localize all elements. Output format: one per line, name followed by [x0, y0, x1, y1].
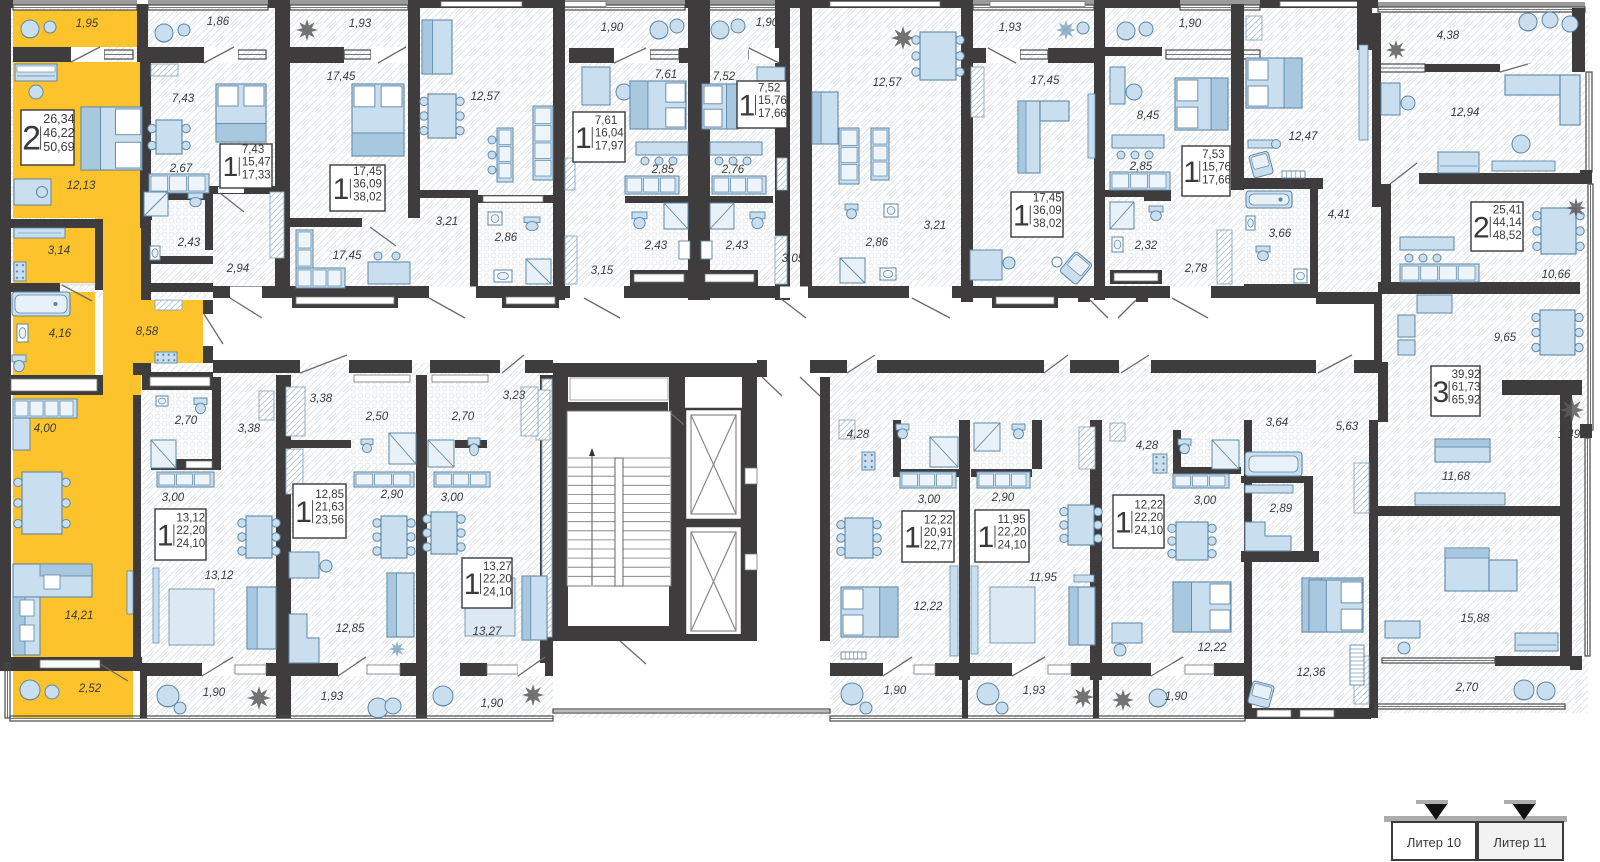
- svg-text:38,02: 38,02: [353, 192, 382, 204]
- svg-text:1,90: 1,90: [884, 685, 907, 697]
- svg-text:1: 1: [904, 521, 921, 554]
- svg-text:12,36: 12,36: [1297, 667, 1326, 679]
- svg-text:12,94: 12,94: [1451, 107, 1480, 119]
- svg-text:2,70: 2,70: [1455, 682, 1479, 694]
- svg-text:26,34: 26,34: [43, 112, 74, 126]
- svg-text:7,61: 7,61: [655, 69, 677, 81]
- svg-text:2,76: 2,76: [721, 164, 745, 176]
- svg-text:2,90: 2,90: [380, 489, 404, 501]
- svg-text:1: 1: [1013, 199, 1030, 232]
- svg-text:22,20: 22,20: [176, 525, 205, 537]
- svg-text:1,95: 1,95: [76, 18, 99, 30]
- svg-text:15,88: 15,88: [1461, 613, 1490, 625]
- svg-text:4,00: 4,00: [34, 423, 57, 435]
- svg-text:2,32: 2,32: [1134, 240, 1158, 252]
- svg-text:13,12: 13,12: [176, 512, 205, 524]
- svg-text:2,94: 2,94: [226, 263, 249, 275]
- svg-text:1: 1: [223, 151, 239, 182]
- svg-text:3,05: 3,05: [782, 253, 805, 265]
- svg-text:2,50: 2,50: [365, 411, 389, 423]
- svg-text:2,78: 2,78: [1184, 263, 1208, 275]
- svg-text:5,63: 5,63: [1336, 421, 1359, 433]
- svg-text:3,21: 3,21: [924, 220, 946, 232]
- svg-text:2: 2: [1473, 211, 1490, 244]
- svg-text:12,22: 12,22: [924, 514, 953, 526]
- svg-text:17,45: 17,45: [1031, 75, 1060, 87]
- svg-text:1,90: 1,90: [481, 698, 504, 710]
- svg-text:11,95: 11,95: [1029, 572, 1058, 584]
- svg-text:22,20: 22,20: [998, 527, 1027, 539]
- svg-text:1,90: 1,90: [203, 687, 226, 699]
- svg-text:2: 2: [22, 120, 41, 158]
- svg-text:7,43: 7,43: [172, 93, 195, 105]
- svg-text:7,52: 7,52: [713, 71, 736, 83]
- svg-text:13,27: 13,27: [483, 561, 512, 573]
- svg-text:1,90: 1,90: [601, 22, 624, 34]
- svg-text:15,76: 15,76: [758, 95, 787, 107]
- svg-text:4,28: 4,28: [847, 429, 870, 441]
- svg-text:3: 3: [1432, 376, 1449, 409]
- svg-text:23,56: 23,56: [315, 515, 344, 527]
- svg-text:17,45: 17,45: [1033, 192, 1062, 204]
- svg-text:1,93: 1,93: [999, 22, 1022, 34]
- svg-text:2,70: 2,70: [451, 411, 475, 423]
- svg-text:3,38: 3,38: [310, 393, 333, 405]
- svg-text:24,10: 24,10: [998, 540, 1027, 552]
- svg-text:2,85: 2,85: [651, 164, 675, 176]
- svg-text:12,22: 12,22: [1198, 642, 1227, 654]
- svg-text:3,38: 3,38: [238, 423, 261, 435]
- svg-text:12,85: 12,85: [315, 489, 344, 501]
- svg-text:65,92: 65,92: [1452, 395, 1481, 407]
- svg-text:3,00: 3,00: [1194, 495, 1217, 507]
- svg-text:2,90: 2,90: [991, 492, 1015, 504]
- svg-text:1: 1: [1183, 156, 1200, 189]
- svg-text:2,43: 2,43: [725, 240, 749, 252]
- svg-text:17,97: 17,97: [595, 141, 624, 153]
- svg-text:12,22: 12,22: [914, 601, 943, 613]
- svg-text:36,09: 36,09: [353, 179, 382, 191]
- svg-text:17,66: 17,66: [758, 108, 787, 120]
- svg-text:17,66: 17,66: [1202, 175, 1231, 187]
- svg-text:10,66: 10,66: [1542, 269, 1571, 281]
- svg-text:1: 1: [575, 122, 592, 155]
- svg-text:1,93: 1,93: [321, 691, 344, 703]
- svg-text:15,76: 15,76: [1202, 162, 1231, 174]
- svg-text:8,58: 8,58: [136, 326, 159, 338]
- svg-text:1,49: 1,49: [1558, 429, 1581, 441]
- svg-text:1: 1: [739, 89, 756, 122]
- svg-text:14,21: 14,21: [65, 610, 94, 622]
- svg-text:12,13: 12,13: [67, 180, 96, 192]
- svg-text:1,90: 1,90: [1165, 691, 1188, 703]
- svg-text:44,14: 44,14: [1493, 217, 1522, 229]
- svg-text:25,41: 25,41: [1493, 204, 1522, 216]
- svg-text:4,41: 4,41: [1328, 209, 1350, 221]
- svg-text:3,00: 3,00: [918, 494, 941, 506]
- svg-text:13,12: 13,12: [205, 570, 234, 582]
- svg-text:1: 1: [977, 521, 994, 554]
- svg-text:36,09: 36,09: [1033, 205, 1062, 217]
- svg-text:2,70: 2,70: [174, 415, 198, 427]
- svg-text:1: 1: [333, 173, 350, 206]
- svg-text:4,38: 4,38: [1437, 30, 1460, 42]
- svg-text:2,86: 2,86: [494, 232, 518, 244]
- svg-text:50,69: 50,69: [43, 140, 74, 154]
- svg-text:2,43: 2,43: [644, 240, 668, 252]
- svg-text:16,04: 16,04: [595, 128, 624, 140]
- svg-text:15,47: 15,47: [242, 157, 271, 169]
- svg-text:24,10: 24,10: [1134, 525, 1163, 537]
- svg-text:11,68: 11,68: [1442, 471, 1471, 483]
- svg-text:3,00: 3,00: [162, 492, 185, 504]
- svg-text:17,33: 17,33: [242, 170, 271, 182]
- svg-text:22,20: 22,20: [483, 574, 512, 586]
- svg-text:13,27: 13,27: [473, 626, 502, 638]
- svg-text:7,52: 7,52: [758, 82, 780, 94]
- svg-text:7,61: 7,61: [595, 115, 617, 127]
- svg-text:22,20: 22,20: [1134, 512, 1163, 524]
- svg-text:12,57: 12,57: [471, 91, 500, 103]
- svg-text:2,89: 2,89: [1269, 503, 1293, 515]
- svg-text:1: 1: [295, 496, 312, 529]
- svg-text:3,66: 3,66: [1269, 228, 1292, 240]
- svg-text:2,43: 2,43: [177, 237, 201, 249]
- svg-text:48,52: 48,52: [1493, 230, 1522, 242]
- svg-text:2,52: 2,52: [78, 683, 102, 695]
- svg-text:12,47: 12,47: [1289, 131, 1318, 143]
- svg-text:61,73: 61,73: [1452, 382, 1481, 394]
- svg-text:17,45: 17,45: [333, 250, 362, 262]
- svg-text:2,86: 2,86: [865, 237, 889, 249]
- svg-text:3,64: 3,64: [1266, 417, 1288, 429]
- svg-text:9,65: 9,65: [1494, 332, 1517, 344]
- svg-text:39,92: 39,92: [1452, 369, 1481, 381]
- svg-text:46,22: 46,22: [43, 126, 74, 140]
- svg-text:12,22: 12,22: [1134, 499, 1163, 511]
- svg-text:Литер 10: Литер 10: [1407, 835, 1461, 850]
- svg-text:7,43: 7,43: [242, 144, 264, 156]
- svg-text:4,16: 4,16: [49, 328, 72, 340]
- svg-text:21,63: 21,63: [315, 502, 344, 514]
- svg-text:3,00: 3,00: [441, 492, 464, 504]
- svg-text:1,93: 1,93: [1023, 685, 1046, 697]
- svg-text:24,10: 24,10: [483, 587, 512, 599]
- svg-text:1,90: 1,90: [756, 17, 779, 29]
- svg-text:24,10: 24,10: [176, 538, 205, 550]
- svg-text:1,86: 1,86: [207, 16, 230, 28]
- svg-text:17,45: 17,45: [353, 166, 382, 178]
- svg-text:1,93: 1,93: [349, 18, 372, 30]
- svg-text:8,45: 8,45: [1137, 110, 1160, 122]
- svg-text:3,23: 3,23: [503, 390, 526, 402]
- svg-text:2,67: 2,67: [169, 163, 193, 175]
- svg-text:1: 1: [157, 519, 174, 552]
- svg-text:Литер 11: Литер 11: [1493, 835, 1546, 850]
- svg-text:17,45: 17,45: [327, 71, 356, 83]
- svg-text:1,90: 1,90: [1179, 18, 1202, 30]
- svg-text:22,77: 22,77: [924, 540, 953, 552]
- svg-text:12,85: 12,85: [336, 623, 365, 635]
- svg-text:11,95: 11,95: [998, 514, 1026, 526]
- svg-text:3,15: 3,15: [591, 265, 614, 277]
- svg-text:20,91: 20,91: [924, 527, 953, 539]
- svg-text:1: 1: [464, 568, 481, 601]
- svg-text:12,57: 12,57: [873, 77, 902, 89]
- svg-text:1: 1: [1115, 506, 1132, 539]
- svg-text:4,28: 4,28: [1136, 440, 1159, 452]
- svg-text:2,85: 2,85: [1129, 161, 1153, 173]
- svg-text:3,14: 3,14: [48, 245, 70, 257]
- svg-text:38,02: 38,02: [1033, 218, 1062, 230]
- svg-text:3,21: 3,21: [436, 216, 458, 228]
- svg-text:7,53: 7,53: [1202, 149, 1224, 161]
